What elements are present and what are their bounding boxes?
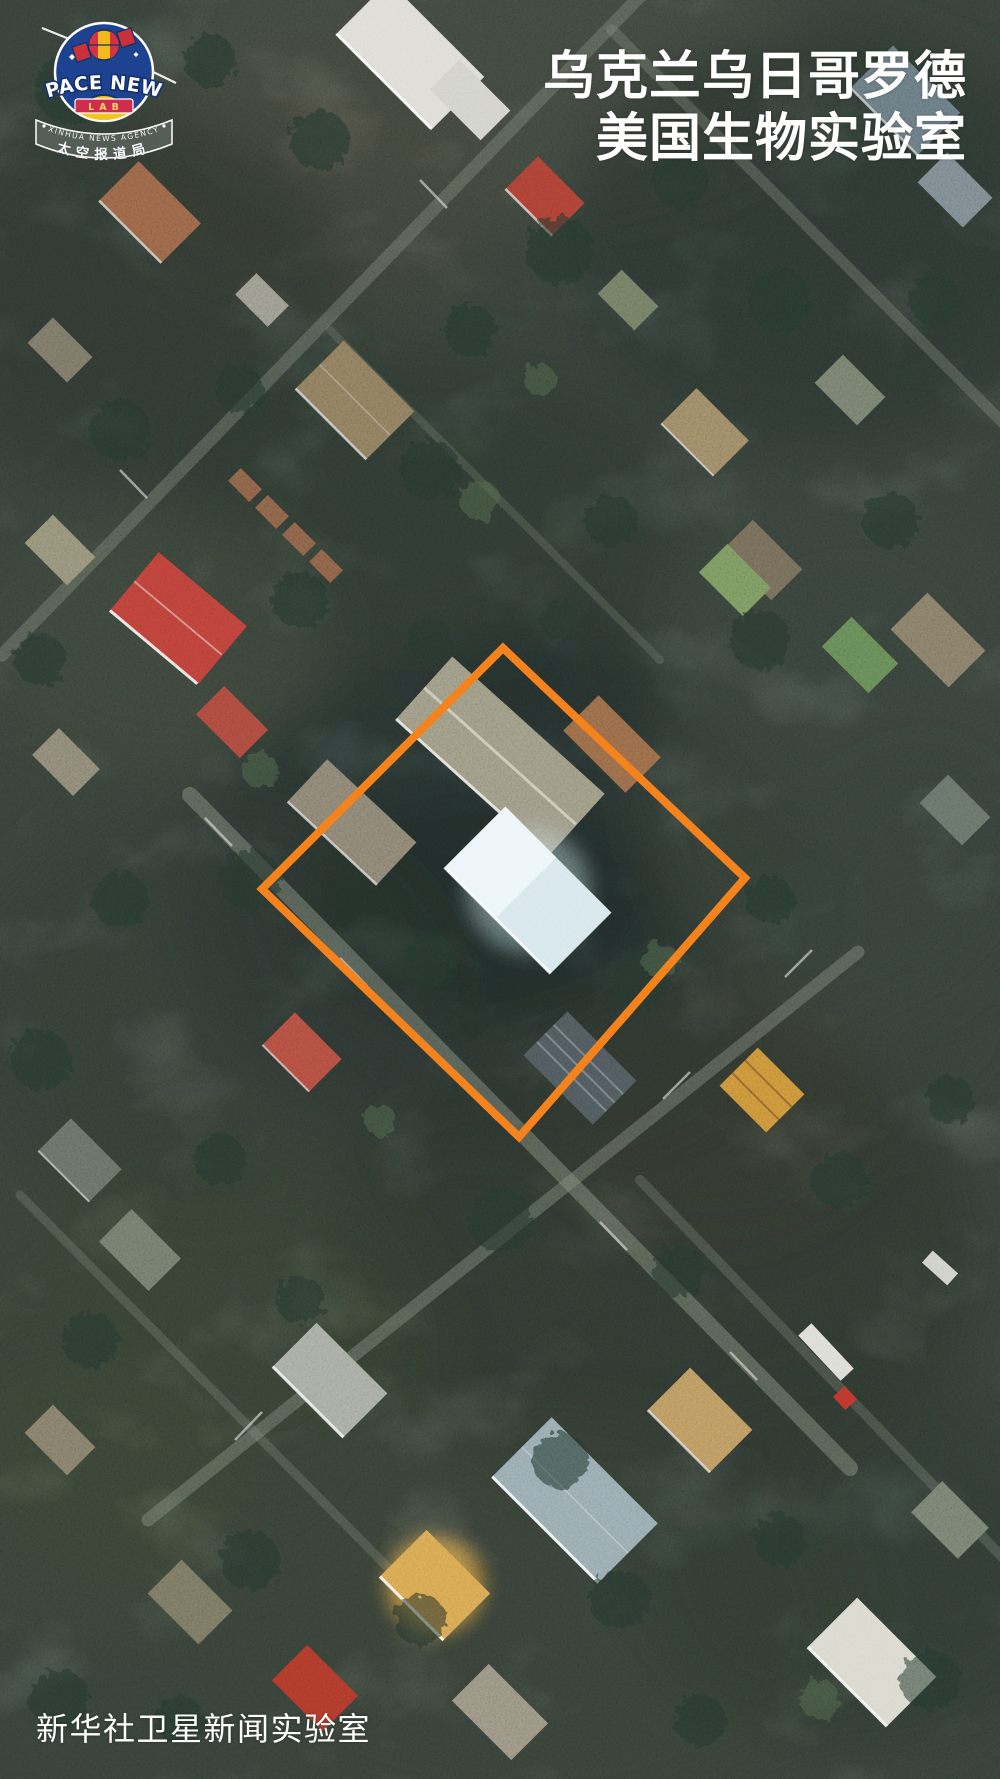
watermark: 新华社卫星新闻实验室 — [36, 1704, 371, 1750]
space-news-lab-logo: SPACE NEWS LAB XINHUA NEWS AGENCY 太空报道局 — [26, 8, 182, 174]
satellite-imagery — [0, 0, 1000, 1779]
title-line1: 乌克兰乌日哥罗德 — [543, 46, 967, 108]
title-line2: 美国生物实验室 — [543, 108, 967, 170]
page-title: 乌克兰乌日哥罗德 美国生物实验室 — [543, 46, 967, 170]
satellite-news-poster: SPACE NEWS LAB XINHUA NEWS AGENCY 太空报道局 … — [0, 0, 1000, 1779]
ribbon-dot-icon — [42, 124, 45, 127]
lab-banner-label: LAB — [88, 102, 124, 113]
ribbon-dot-icon — [162, 124, 165, 127]
